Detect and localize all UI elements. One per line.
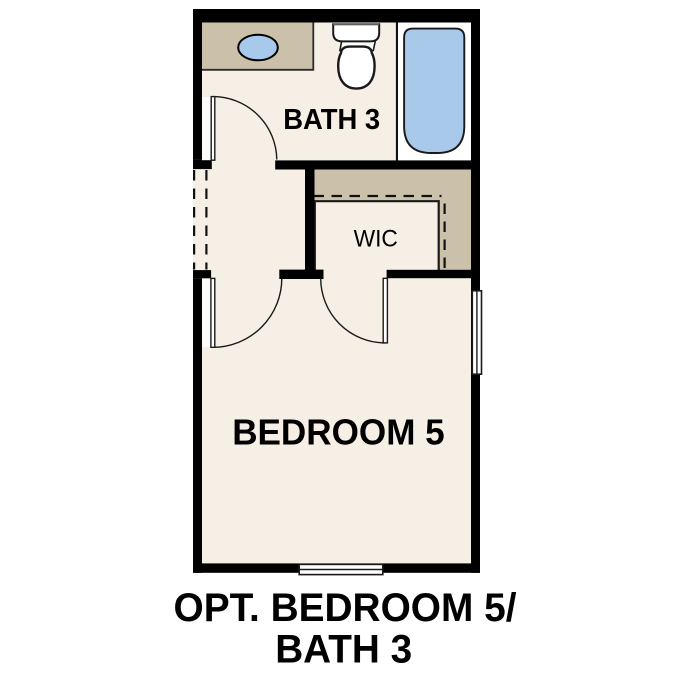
svg-text:BATH 3: BATH 3 bbox=[275, 627, 412, 671]
svg-text:BATH 3: BATH 3 bbox=[283, 104, 380, 136]
svg-text:OPT. BEDROOM 5/: OPT. BEDROOM 5/ bbox=[174, 586, 517, 630]
svg-text:BEDROOM 5: BEDROOM 5 bbox=[232, 412, 445, 453]
svg-text:WIC: WIC bbox=[354, 225, 398, 252]
